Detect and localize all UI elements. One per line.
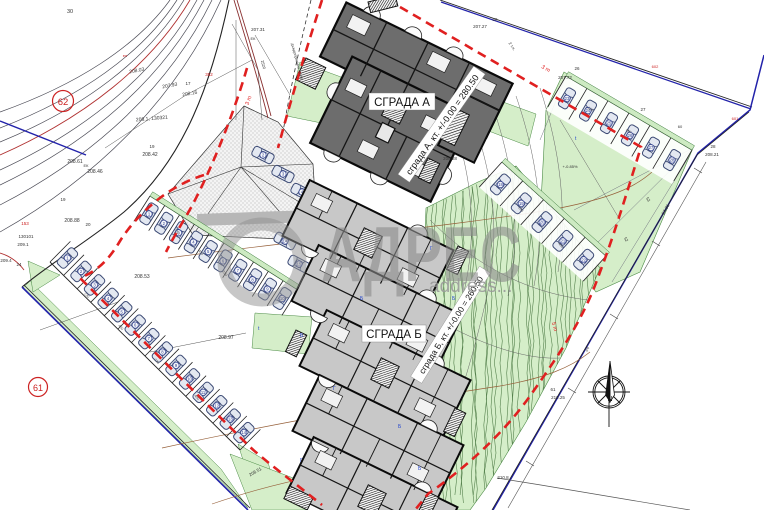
svg-text:17: 17 — [185, 81, 191, 86]
svg-text:208.28: 208.28 — [443, 156, 457, 161]
svg-text:ЕК: ЕК — [251, 36, 257, 41]
svg-text:СГРАДА А: СГРАДА А — [374, 97, 430, 109]
svg-text:208.46: 208.46 — [87, 169, 103, 175]
svg-text:10: 10 — [187, 377, 192, 382]
svg-text:13: 13 — [228, 417, 233, 422]
svg-text:62: 62 — [58, 97, 69, 108]
svg-text:address...: address... — [429, 276, 512, 297]
svg-text:153: 153 — [21, 221, 29, 226]
svg-text:602: 602 — [652, 64, 659, 69]
svg-text:25: 25 — [607, 121, 612, 126]
svg-text:Г: Г — [300, 458, 303, 464]
svg-text:20: 20 — [540, 220, 545, 225]
svg-text:207.31: 207.31 — [251, 27, 265, 32]
svg-text:352: 352 — [205, 72, 213, 77]
svg-text:208.42: 208.42 — [142, 152, 158, 158]
svg-text:28: 28 — [670, 158, 675, 163]
svg-text:27: 27 — [649, 145, 654, 150]
svg-text:26: 26 — [574, 66, 580, 71]
svg-text:14: 14 — [241, 430, 246, 435]
svg-text:60: 60 — [678, 124, 683, 129]
svg-text:207.27: 207.27 — [473, 24, 487, 29]
svg-text:209.1: 209.1 — [17, 242, 29, 247]
svg-text:26: 26 — [492, 17, 498, 22]
svg-text:ел: ел — [123, 53, 128, 58]
svg-text:208.21: 208.21 — [705, 152, 719, 157]
svg-text:12: 12 — [214, 403, 219, 408]
svg-text:210.25: 210.25 — [551, 395, 565, 400]
svg-text:207.72: 207.72 — [558, 75, 572, 80]
svg-text:20: 20 — [85, 222, 91, 227]
svg-text:19: 19 — [60, 197, 66, 202]
svg-text:130101: 130101 — [18, 234, 34, 239]
svg-text:208.97: 208.97 — [218, 335, 234, 341]
svg-text:СГРАДА Б: СГРАДА Б — [366, 329, 422, 341]
svg-text:+-0.85%: +-0.85% — [562, 164, 577, 169]
svg-text:22: 22 — [581, 257, 586, 262]
svg-text:61: 61 — [33, 383, 43, 393]
svg-text:210.8: 210.8 — [497, 475, 509, 480]
svg-text:11: 11 — [201, 390, 206, 395]
svg-text:208.53: 208.53 — [134, 274, 150, 280]
svg-text:ЕК: ЕК — [84, 163, 90, 168]
svg-text:209.4: 209.4 — [0, 258, 12, 263]
svg-text:208.61: 208.61 — [67, 159, 83, 165]
svg-text:28: 28 — [710, 144, 716, 149]
svg-text:208.88: 208.88 — [64, 218, 80, 224]
svg-text:27: 27 — [640, 107, 646, 112]
svg-text:N: N — [607, 396, 612, 403]
svg-text:30: 30 — [67, 9, 73, 15]
svg-text:24: 24 — [16, 262, 22, 267]
svg-text:23: 23 — [565, 96, 570, 101]
svg-text:61: 61 — [550, 387, 556, 392]
svg-text:601: 601 — [732, 116, 739, 121]
svg-text:03: 03 — [448, 149, 454, 154]
svg-text:18: 18 — [498, 182, 503, 187]
svg-text:19: 19 — [149, 144, 155, 149]
svg-text:Г: Г — [333, 386, 336, 392]
